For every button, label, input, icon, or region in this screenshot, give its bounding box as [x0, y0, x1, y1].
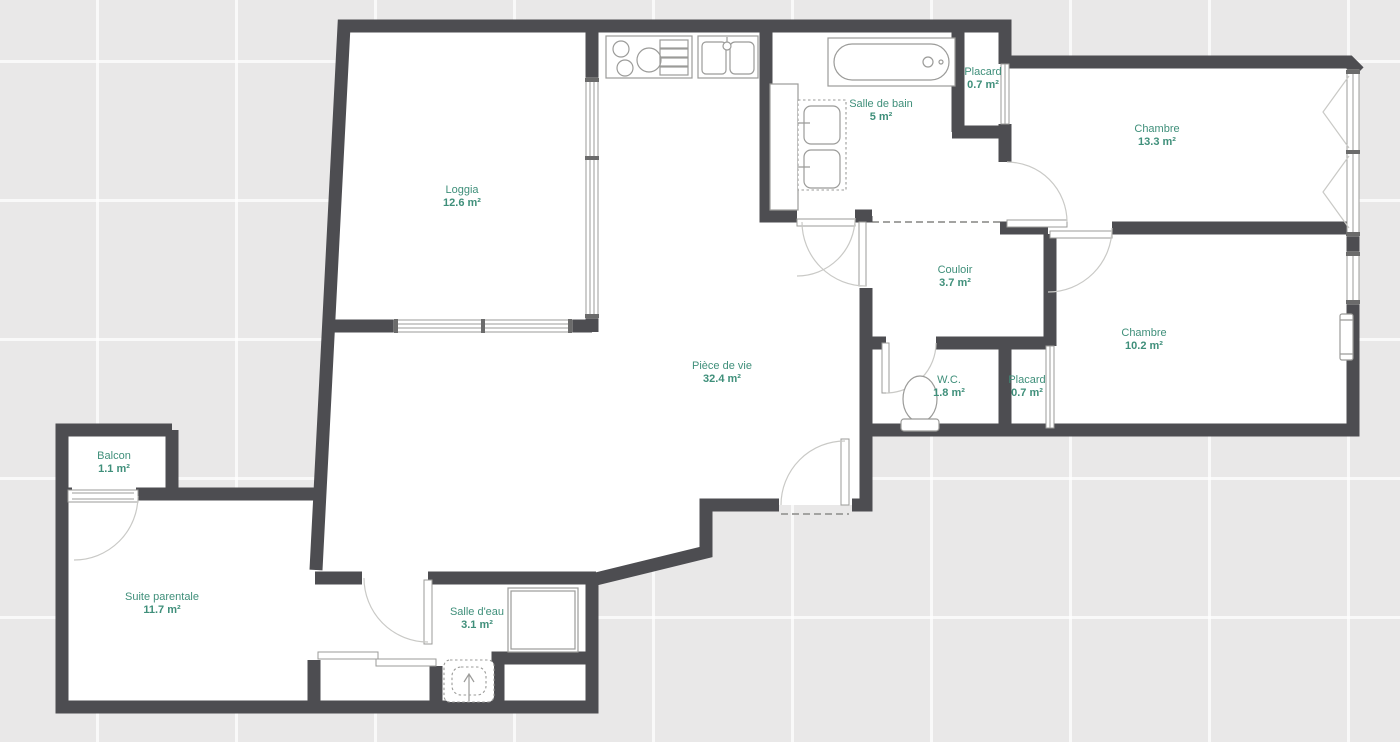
room-label-couloir: Couloir 3.7 m² [938, 264, 973, 289]
room-label-balcon: Balcon 1.1 m² [97, 450, 131, 475]
room-label-wc: W.C. 1.8 m² [933, 374, 965, 399]
svg-text:10.2 m²: 10.2 m² [1125, 340, 1163, 352]
svg-text:Salle d'eau: Salle d'eau [450, 606, 504, 618]
washbasin-icon [444, 660, 494, 702]
shower-icon [508, 588, 578, 652]
room-label-placard-bas: Placard 0.7 m² [1008, 374, 1045, 399]
svg-text:0.7 m²: 0.7 m² [1011, 387, 1043, 399]
svg-text:13.3 m²: 13.3 m² [1138, 136, 1176, 148]
cooktop-icon [606, 36, 692, 78]
svg-text:Pièce de vie: Pièce de vie [692, 360, 752, 372]
kitchen-sink-icon [698, 36, 758, 78]
svg-text:Balcon: Balcon [97, 450, 131, 462]
room-label-chambre-1: Chambre 13.3 m² [1134, 123, 1179, 148]
svg-text:32.4 m²: 32.4 m² [703, 373, 741, 385]
room-label-loggia: Loggia 12.6 m² [443, 184, 481, 209]
chambre-2-window [1346, 252, 1360, 304]
svg-text:11.7 m²: 11.7 m² [143, 604, 181, 616]
tall-cabinet-icon [770, 84, 798, 210]
loggia-bottom-window [394, 319, 572, 333]
svg-text:1.1 m²: 1.1 m² [98, 463, 130, 475]
toilet-icon [901, 376, 939, 431]
svg-text:3.1 m²: 3.1 m² [461, 619, 493, 631]
svg-text:Placard: Placard [964, 66, 1001, 78]
svg-text:Couloir: Couloir [938, 264, 973, 276]
svg-text:Loggia: Loggia [445, 184, 479, 196]
svg-text:0.7 m²: 0.7 m² [967, 79, 999, 91]
floor-plan: Loggia 12.6 m² Salle de bain 5 m² Placar… [0, 0, 1400, 742]
radiator-icon [1340, 314, 1353, 360]
double-washbasin-icon [798, 100, 846, 190]
svg-text:3.7 m²: 3.7 m² [939, 277, 971, 289]
svg-text:Suite parentale: Suite parentale [125, 591, 199, 603]
room-label-chambre-2: Chambre 10.2 m² [1121, 327, 1166, 352]
svg-text:Placard: Placard [1008, 374, 1045, 386]
placard-haut-sliding-door [1001, 64, 1009, 124]
bathtub-icon [828, 38, 955, 86]
placard-bas-sliding-door [1046, 346, 1054, 428]
floor-plan-canvas: Loggia 12.6 m² Salle de bain 5 m² Placar… [0, 0, 1400, 742]
room-label-placard-haut: Placard 0.7 m² [964, 66, 1001, 91]
svg-text:Chambre: Chambre [1134, 123, 1179, 135]
svg-text:1.8 m²: 1.8 m² [933, 387, 965, 399]
svg-text:Chambre: Chambre [1121, 327, 1166, 339]
svg-text:W.C.: W.C. [937, 374, 961, 386]
svg-text:5 m²: 5 m² [870, 111, 893, 123]
loggia-partition-window [585, 78, 599, 318]
svg-text:Salle de bain: Salle de bain [849, 98, 913, 110]
svg-text:12.6 m²: 12.6 m² [443, 197, 481, 209]
